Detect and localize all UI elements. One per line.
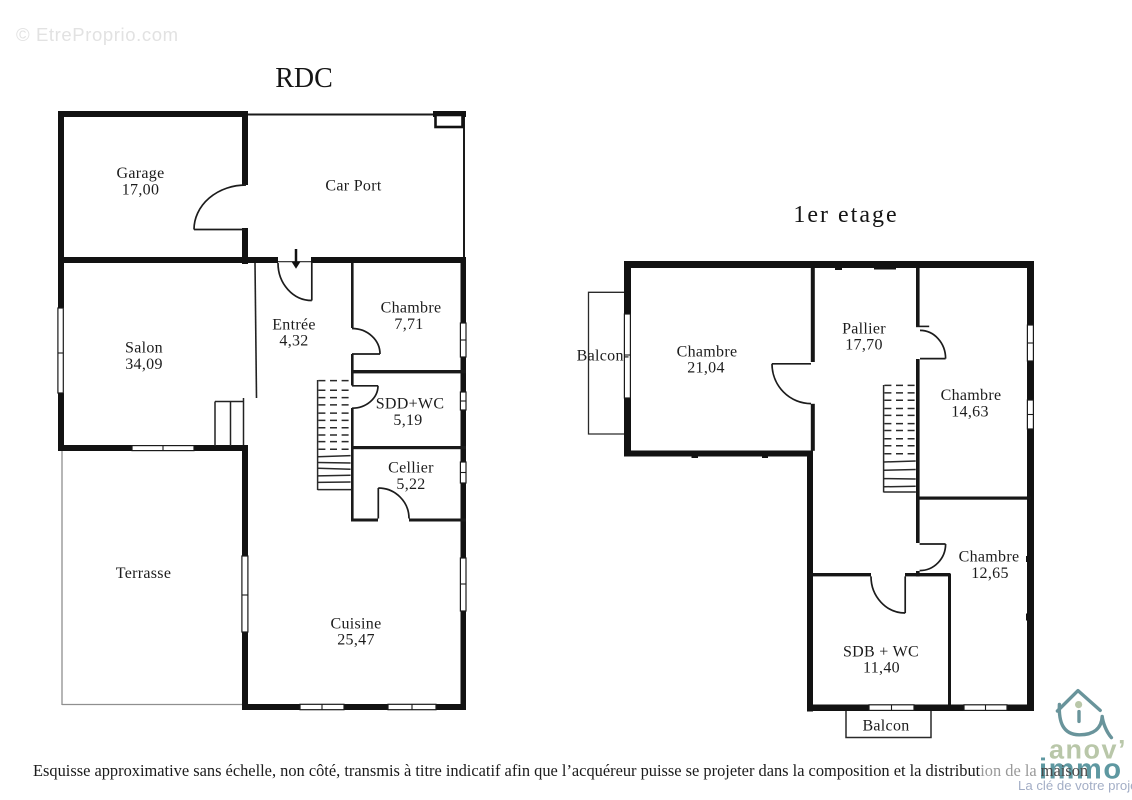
svg-text:La clé de votre projet: La clé de votre projet bbox=[1018, 778, 1132, 793]
svg-text:21,04: 21,04 bbox=[687, 360, 725, 377]
svg-text:5,22: 5,22 bbox=[396, 476, 425, 493]
svg-text:Cellier: Cellier bbox=[388, 460, 434, 477]
svg-text:7,71: 7,71 bbox=[394, 316, 423, 333]
svg-text:Balcon-: Balcon- bbox=[577, 347, 630, 364]
svg-text:Chambre: Chambre bbox=[677, 343, 738, 360]
svg-text:Chambre: Chambre bbox=[381, 300, 442, 317]
svg-text:5,19: 5,19 bbox=[393, 412, 422, 429]
svg-text:Car Port: Car Port bbox=[325, 178, 381, 195]
svg-text:4,32: 4,32 bbox=[279, 333, 308, 350]
svg-text:Esquisse approximative sans éc: Esquisse approximative sans échelle, non… bbox=[33, 761, 1088, 780]
svg-text:Balcon: Balcon bbox=[862, 717, 909, 734]
svg-text:Cuisine: Cuisine bbox=[331, 615, 382, 632]
svg-text:34,09: 34,09 bbox=[125, 356, 163, 373]
svg-text:SDD+WC: SDD+WC bbox=[376, 396, 445, 413]
svg-text:Salon: Salon bbox=[125, 339, 163, 356]
svg-text:Terrasse: Terrasse bbox=[116, 565, 171, 582]
svg-text:17,00: 17,00 bbox=[122, 181, 160, 198]
svg-text:11,40: 11,40 bbox=[863, 660, 900, 677]
svg-text:Pallier: Pallier bbox=[842, 320, 886, 337]
svg-text:14,63: 14,63 bbox=[951, 403, 989, 420]
svg-text:25,47: 25,47 bbox=[337, 632, 375, 649]
svg-text:Chambre: Chambre bbox=[959, 549, 1020, 566]
svg-text:1er etage: 1er etage bbox=[793, 202, 898, 228]
svg-text:Chambre: Chambre bbox=[941, 387, 1002, 404]
svg-text:RDC: RDC bbox=[275, 63, 333, 94]
svg-text:Garage: Garage bbox=[117, 165, 165, 182]
svg-text:12,65: 12,65 bbox=[971, 565, 1009, 582]
svg-text:© EtreProprio.com: © EtreProprio.com bbox=[16, 24, 179, 45]
svg-text:SDB + WC: SDB + WC bbox=[843, 643, 919, 660]
svg-text:Entrée: Entrée bbox=[272, 316, 316, 333]
svg-text:17,70: 17,70 bbox=[845, 337, 883, 354]
